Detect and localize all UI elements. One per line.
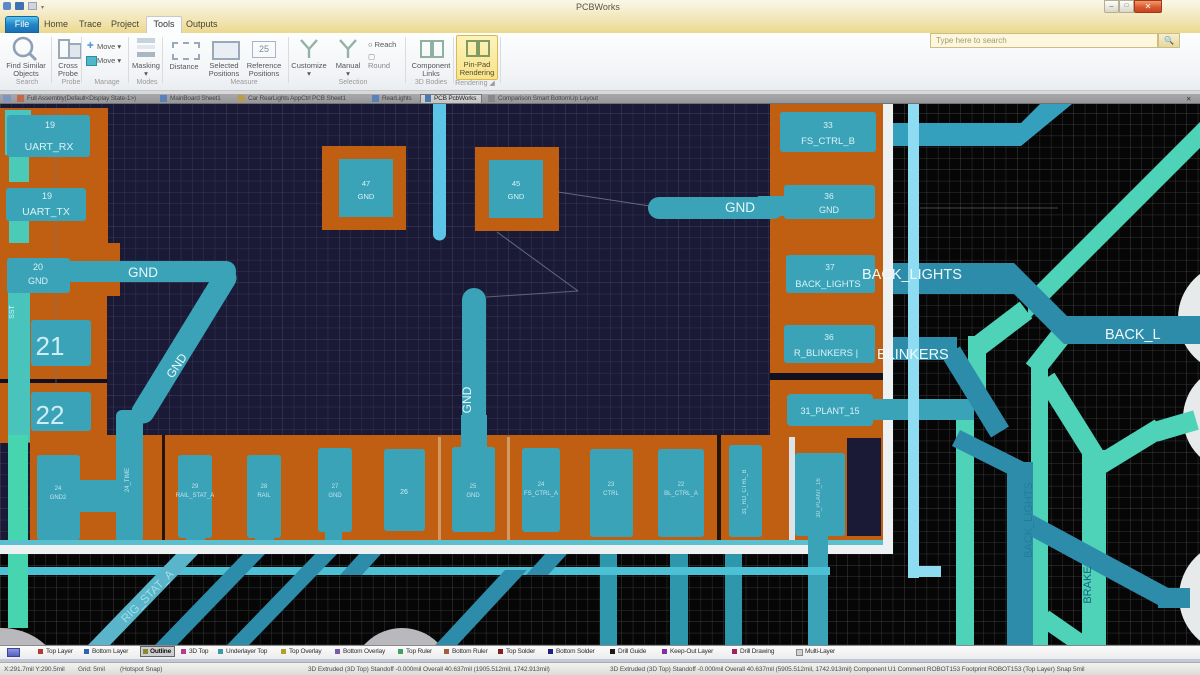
svg-text:R_BLINKERS |: R_BLINKERS | xyxy=(794,348,858,359)
svg-text:SST: SST xyxy=(9,304,16,318)
svg-text:22: 22 xyxy=(36,400,65,430)
svg-text:24: 24 xyxy=(55,486,62,492)
svg-text:36: 36 xyxy=(824,191,834,201)
svg-text:29: 29 xyxy=(192,484,199,490)
svg-text:19: 19 xyxy=(42,191,52,201)
svg-text:25: 25 xyxy=(470,484,477,490)
svg-text:GND2: GND2 xyxy=(50,495,67,501)
svg-text:28: 28 xyxy=(261,484,268,490)
svg-text:BACK_LIGHTS: BACK_LIGHTS xyxy=(1023,482,1035,558)
svg-text:GND: GND xyxy=(328,493,342,499)
svg-text:24_TIME: 24_TIME xyxy=(125,468,131,492)
svg-text:20: 20 xyxy=(33,262,43,272)
svg-text:19: 19 xyxy=(45,120,55,130)
svg-text:UART_RX: UART_RX xyxy=(25,141,74,153)
svg-text:GND: GND xyxy=(358,192,375,201)
svg-text:GND: GND xyxy=(460,386,474,413)
svg-text:GND: GND xyxy=(508,192,525,201)
svg-text:23: 23 xyxy=(608,482,615,488)
svg-text:CTRL: CTRL xyxy=(603,491,619,497)
svg-text:31_RD_CTRL_B: 31_RD_CTRL_B xyxy=(742,469,748,514)
svg-text:22: 22 xyxy=(678,482,685,488)
svg-text:GND: GND xyxy=(819,205,840,215)
svg-text:GND: GND xyxy=(466,493,480,499)
svg-text:BACK_LIGHTS: BACK_LIGHTS xyxy=(862,267,962,283)
svg-text:BRAKE: BRAKE xyxy=(1082,566,1094,603)
svg-text:RAIL: RAIL xyxy=(257,493,271,499)
svg-text:21: 21 xyxy=(36,331,65,361)
svg-text:BL_CTRL_A: BL_CTRL_A xyxy=(664,491,698,497)
svg-text:47: 47 xyxy=(362,179,370,188)
svg-text:26: 26 xyxy=(400,489,408,496)
svg-text:RAIL_STAT_A: RAIL_STAT_A xyxy=(176,493,214,499)
svg-text:36: 36 xyxy=(824,332,834,342)
svg-text:GND: GND xyxy=(725,200,755,215)
svg-text:33: 33 xyxy=(823,120,833,130)
svg-text:31_PLANT_15: 31_PLANT_15 xyxy=(800,406,859,416)
svg-text:37: 37 xyxy=(825,262,835,272)
svg-text:24: 24 xyxy=(538,482,545,488)
svg-text:UART_TX: UART_TX xyxy=(22,206,70,218)
svg-text:GND: GND xyxy=(128,265,158,280)
svg-text:BLINKERS: BLINKERS xyxy=(877,347,949,363)
svg-text:BACK_L: BACK_L xyxy=(1105,327,1161,343)
svg-text:FS_CTRL_A: FS_CTRL_A xyxy=(524,491,558,497)
svg-text:GND: GND xyxy=(28,276,49,286)
svg-text:45: 45 xyxy=(512,179,520,188)
svg-text:27: 27 xyxy=(332,484,339,490)
svg-text:30_PLANT_16: 30_PLANT_16 xyxy=(816,478,822,518)
svg-text:BACK_LIGHTS: BACK_LIGHTS xyxy=(795,279,860,290)
svg-text:FS_CTRL_B: FS_CTRL_B xyxy=(801,136,855,147)
